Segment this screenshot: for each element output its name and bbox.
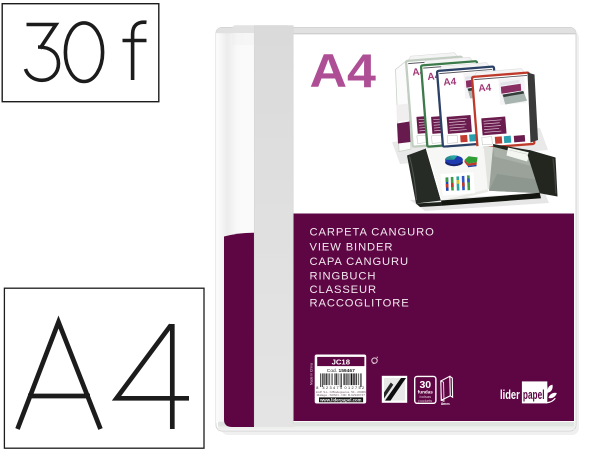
svg-text:lider: lider [500,387,520,402]
svg-text:papel: papel [523,387,545,402]
svg-text:VIEW BINDER: VIEW BINDER [310,242,394,254]
svg-text:CAPA CANGURU: CAPA CANGURU [310,256,409,268]
svg-text:www.liderpapel.com: www.liderpapel.com [319,397,362,402]
svg-text:CARPETA CANGURO: CARPETA CANGURO [310,227,435,239]
svg-text:Made in China: Made in China [309,363,313,385]
svg-text:A4: A4 [310,44,377,97]
svg-text:pockets: pockets [418,398,432,403]
svg-text:A4: A4 [478,83,492,95]
svg-text:Cod. 159467: Cod. 159467 [327,368,355,374]
svg-text:A4: A4 [443,77,457,89]
svg-text:RACCOGLITORE: RACCOGLITORE [310,298,410,310]
svg-text:RINGBUCH: RINGBUCH [310,271,377,283]
svg-text:8mm: 8mm [441,402,450,406]
svg-text:CLASSEUR: CLASSEUR [310,284,378,296]
svg-text:JC18: JC18 [332,357,351,366]
